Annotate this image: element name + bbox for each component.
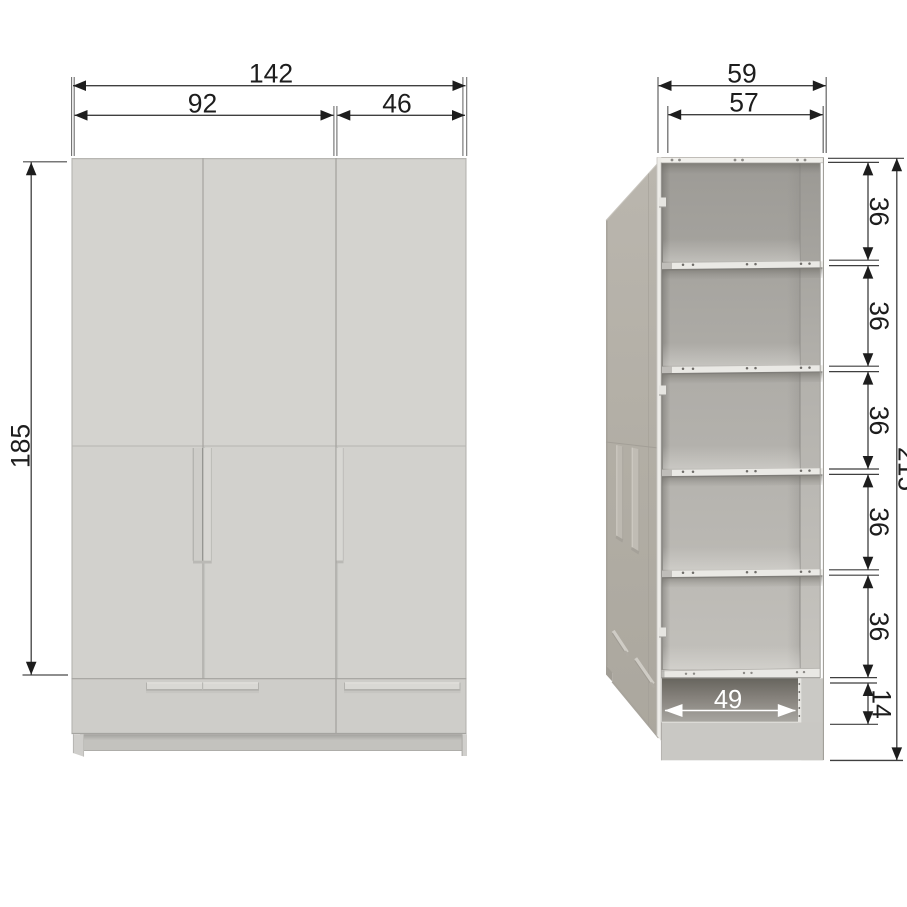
svg-text:215: 215 xyxy=(893,447,907,491)
svg-text:36: 36 xyxy=(864,406,894,435)
svg-text:36: 36 xyxy=(864,301,894,330)
svg-text:36: 36 xyxy=(864,612,894,641)
svg-text:185: 185 xyxy=(6,424,36,468)
svg-text:36: 36 xyxy=(864,507,894,536)
svg-text:14: 14 xyxy=(867,689,897,718)
svg-text:36: 36 xyxy=(864,197,894,226)
svg-text:59: 59 xyxy=(727,59,756,89)
svg-text:92: 92 xyxy=(188,89,217,119)
svg-text:142: 142 xyxy=(249,59,293,89)
svg-text:49: 49 xyxy=(714,686,742,714)
svg-text:46: 46 xyxy=(382,89,411,119)
svg-text:57: 57 xyxy=(729,88,758,118)
